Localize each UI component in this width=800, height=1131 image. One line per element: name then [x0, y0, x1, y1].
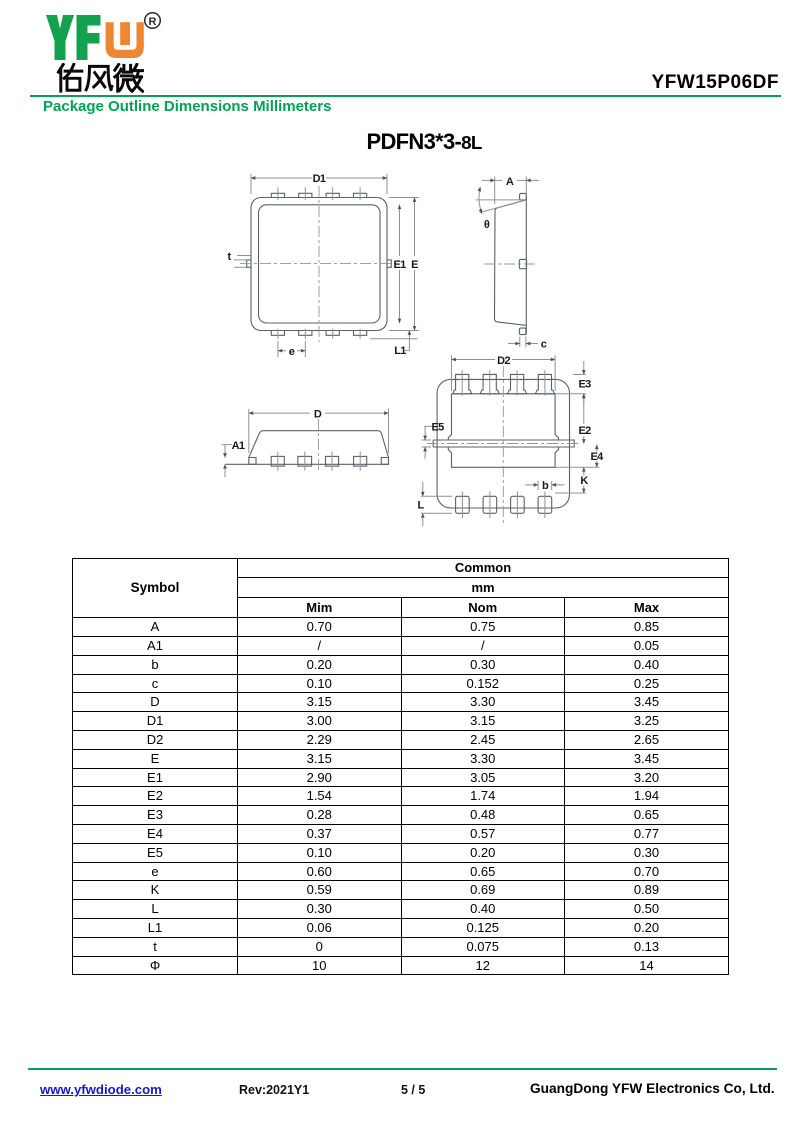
- svg-text:L1: L1: [394, 345, 406, 357]
- svg-text:A1: A1: [232, 440, 245, 452]
- svg-text:E4: E4: [590, 451, 604, 463]
- svg-text:E2: E2: [578, 425, 591, 437]
- svg-text:D: D: [314, 409, 322, 421]
- svg-text:E: E: [411, 259, 418, 271]
- svg-text:c: c: [541, 339, 547, 351]
- svg-text:E3: E3: [578, 379, 591, 391]
- svg-text:t: t: [228, 251, 232, 263]
- svg-text:e: e: [289, 346, 295, 358]
- svg-text:E5: E5: [431, 421, 444, 433]
- svg-text:θ: θ: [484, 219, 490, 231]
- svg-text:D1: D1: [313, 173, 326, 185]
- svg-text:L: L: [418, 500, 425, 512]
- svg-text:E1: E1: [393, 259, 406, 271]
- svg-text:b: b: [542, 480, 549, 492]
- svg-text:K: K: [580, 475, 588, 487]
- svg-text:A: A: [506, 176, 514, 188]
- svg-text:D2: D2: [497, 355, 510, 367]
